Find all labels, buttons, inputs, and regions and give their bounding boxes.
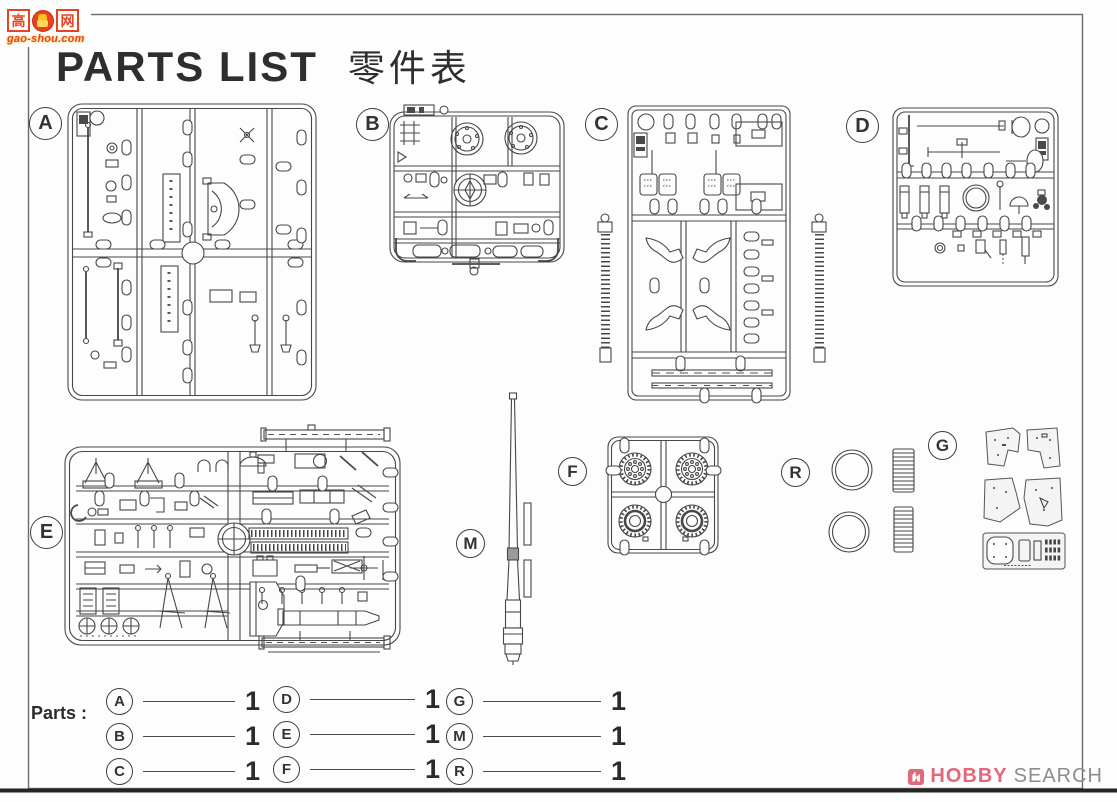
parts-table-heading: Parts : — [31, 703, 87, 724]
sprue-b-drawing — [390, 105, 564, 275]
sprue-d-drawing — [893, 108, 1058, 286]
sprue-artwork — [0, 0, 1117, 802]
thumbs-up-icon — [32, 10, 54, 32]
parts-circle-b: B — [106, 723, 133, 750]
sprue-label-m: M — [456, 529, 485, 558]
hobby-search-logo: HOBBY SEARCH — [908, 765, 1103, 788]
parts-qty-c: 1 — [245, 756, 260, 787]
sprue-label-d: D — [846, 110, 879, 143]
parts-qty-e: 1 — [425, 719, 440, 750]
parts-row-c: C 1 — [106, 756, 260, 787]
parts-row-e: E 1 — [273, 719, 440, 750]
tow-cable-left — [598, 214, 612, 362]
sprue-label-c: C — [585, 108, 618, 141]
g-parts-drawing — [983, 428, 1065, 569]
leader-line — [483, 736, 601, 737]
leader-line — [483, 701, 601, 702]
parts-qty-m: 1 — [611, 721, 626, 752]
page-border — [0, 15, 1117, 791]
watermark-char-right: 网 — [56, 9, 79, 32]
leader-line — [143, 701, 235, 702]
tow-cable-right — [812, 214, 826, 362]
page-title: PARTS LIST 零件表 — [56, 38, 471, 92]
parts-circle-d: D — [273, 686, 300, 713]
sprue-label-a: A — [29, 107, 62, 140]
hobby-search-brand-primary: HOBBY — [930, 765, 1007, 788]
parts-circle-g: G — [446, 688, 473, 715]
parts-row-d: D 1 — [273, 684, 440, 715]
gun-barrel-drawing — [504, 393, 532, 665]
sprue-label-g: G — [928, 431, 957, 460]
sprue-a-drawing — [68, 104, 316, 400]
sprue-label-e: E — [30, 516, 63, 549]
parts-qty-b: 1 — [245, 721, 260, 752]
sprue-f-drawing — [606, 437, 721, 555]
hobby-search-flame-icon — [908, 769, 924, 785]
parts-circle-f: F — [273, 756, 300, 783]
sprue-label-b: B — [356, 108, 389, 141]
parts-row-a: A 1 — [106, 686, 260, 717]
parts-row-m: M 1 — [446, 721, 626, 752]
parts-circle-r: R — [446, 758, 473, 785]
leader-line — [310, 769, 415, 770]
leader-line — [143, 771, 235, 772]
parts-qty-a: 1 — [245, 686, 260, 717]
parts-qty-f: 1 — [425, 754, 440, 785]
leader-line — [310, 699, 415, 700]
parts-qty-r: 1 — [611, 756, 626, 787]
parts-row-f: F 1 — [273, 754, 440, 785]
title-chinese: 零件表 — [348, 38, 471, 92]
parts-row-b: B 1 — [106, 721, 260, 752]
leader-line — [483, 771, 601, 772]
sprue-label-r: R — [781, 458, 810, 487]
leader-line — [310, 734, 415, 735]
sprue-e-drawing — [65, 425, 400, 652]
hobby-search-brand-secondary: SEARCH — [1014, 765, 1103, 788]
watermark-url: gao-shou.com — [7, 33, 85, 45]
parts-row-r: R 1 — [446, 756, 626, 787]
parts-circle-a: A — [106, 688, 133, 715]
parts-qty-g: 1 — [611, 686, 626, 717]
parts-list-page: 高 网 gao-shou.com PARTS LIST 零件表 — [0, 0, 1117, 802]
parts-circle-c: C — [106, 758, 133, 785]
r-parts-drawing — [829, 449, 914, 552]
sprue-label-f: F — [558, 457, 587, 486]
parts-qty-d: 1 — [425, 684, 440, 715]
gaoshou-watermark: 高 网 gao-shou.com — [6, 8, 91, 47]
parts-circle-m: M — [446, 723, 473, 750]
parts-row-g: G 1 — [446, 686, 626, 717]
sprue-c-drawing — [598, 106, 826, 403]
watermark-char-left: 高 — [7, 9, 30, 32]
leader-line — [143, 736, 235, 737]
title-english: PARTS LIST — [56, 43, 318, 91]
parts-circle-e: E — [273, 721, 300, 748]
